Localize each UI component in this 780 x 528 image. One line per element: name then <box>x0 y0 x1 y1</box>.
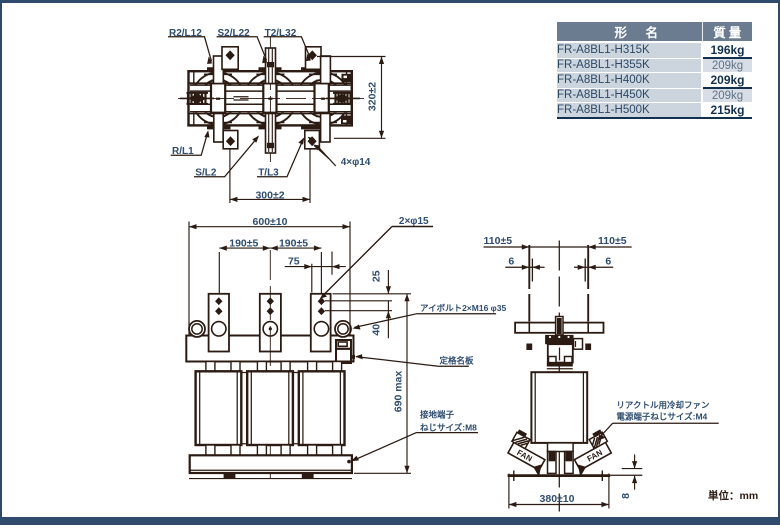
svg-text:380±10: 380±10 <box>540 493 575 505</box>
svg-text:リアクトル用冷却ファン: リアクトル用冷却ファン <box>616 400 710 410</box>
svg-text:110±5: 110±5 <box>484 235 513 247</box>
svg-text:単位：mm: 単位：mm <box>708 489 758 502</box>
svg-text:R2/L12: R2/L12 <box>169 28 202 39</box>
svg-text:190±5: 190±5 <box>279 237 308 249</box>
svg-text:40: 40 <box>371 324 383 336</box>
svg-text:接地端子: 接地端子 <box>420 410 455 420</box>
svg-text:アイボルト2×M16 φ35: アイボルト2×M16 φ35 <box>420 303 506 313</box>
svg-text:190±5: 190±5 <box>229 237 258 249</box>
svg-text:T/L3: T/L3 <box>258 168 279 179</box>
svg-text:S/L2: S/L2 <box>195 168 217 179</box>
svg-text:25: 25 <box>371 270 383 282</box>
svg-text:300±2: 300±2 <box>255 189 284 201</box>
svg-text:75: 75 <box>288 255 300 267</box>
svg-text:110±5: 110±5 <box>598 235 627 247</box>
svg-text:320±2: 320±2 <box>366 82 378 111</box>
svg-text:6: 6 <box>605 256 611 268</box>
svg-text:電源端子ねじサイズ:M4: 電源端子ねじサイズ:M4 <box>616 412 707 422</box>
svg-text:R/L1: R/L1 <box>172 146 194 157</box>
svg-text:S2/L22: S2/L22 <box>218 28 251 39</box>
svg-text:ねじサイズ:M8: ねじサイズ:M8 <box>420 422 477 432</box>
svg-text:T2/L32: T2/L32 <box>265 28 297 39</box>
svg-text:690 max: 690 max <box>393 371 405 413</box>
svg-text:2×φ15: 2×φ15 <box>399 216 429 227</box>
svg-text:定格名板: 定格名板 <box>439 356 475 366</box>
svg-text:8: 8 <box>620 493 632 499</box>
svg-text:4×φ14: 4×φ14 <box>341 157 371 168</box>
svg-text:600±10: 600±10 <box>253 216 288 228</box>
svg-text:6: 6 <box>508 256 514 268</box>
